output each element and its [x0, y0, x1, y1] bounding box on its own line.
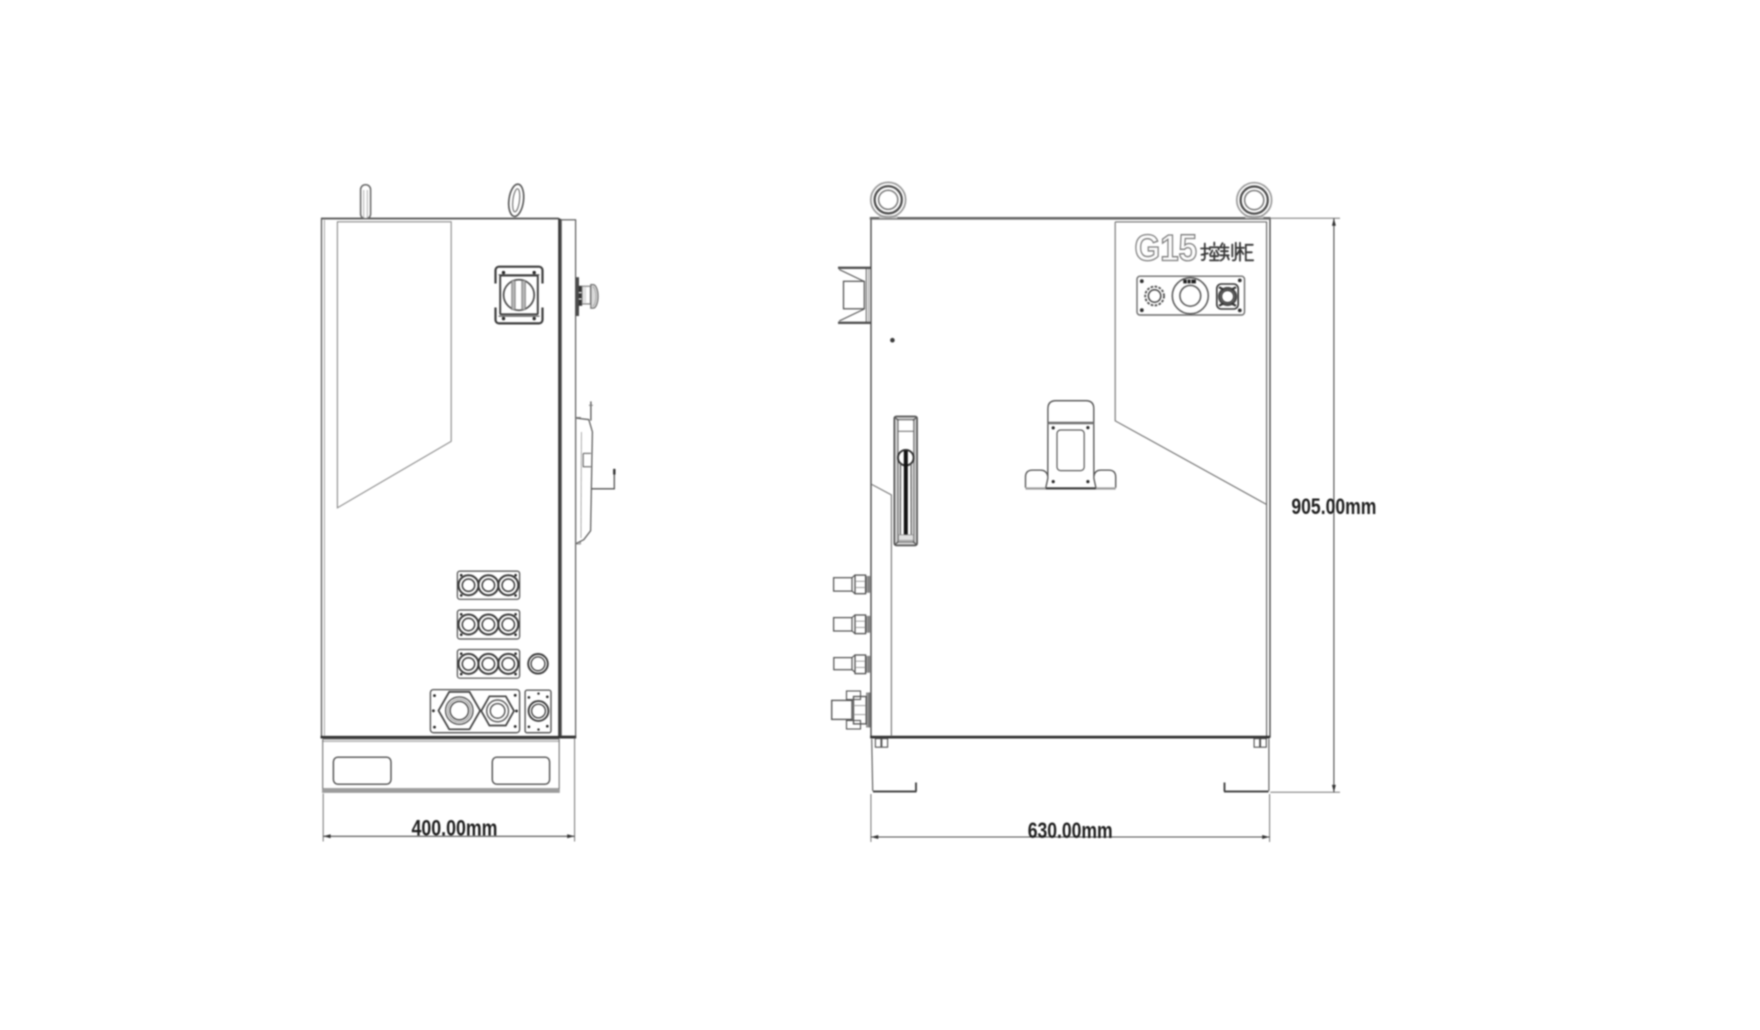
svg-text:G15: G15 [1135, 227, 1198, 269]
svg-text:630.00mm: 630.00mm [1028, 818, 1113, 843]
svg-text:400.00mm: 400.00mm [412, 815, 498, 840]
svg-text:905.00mm: 905.00mm [1291, 494, 1376, 519]
